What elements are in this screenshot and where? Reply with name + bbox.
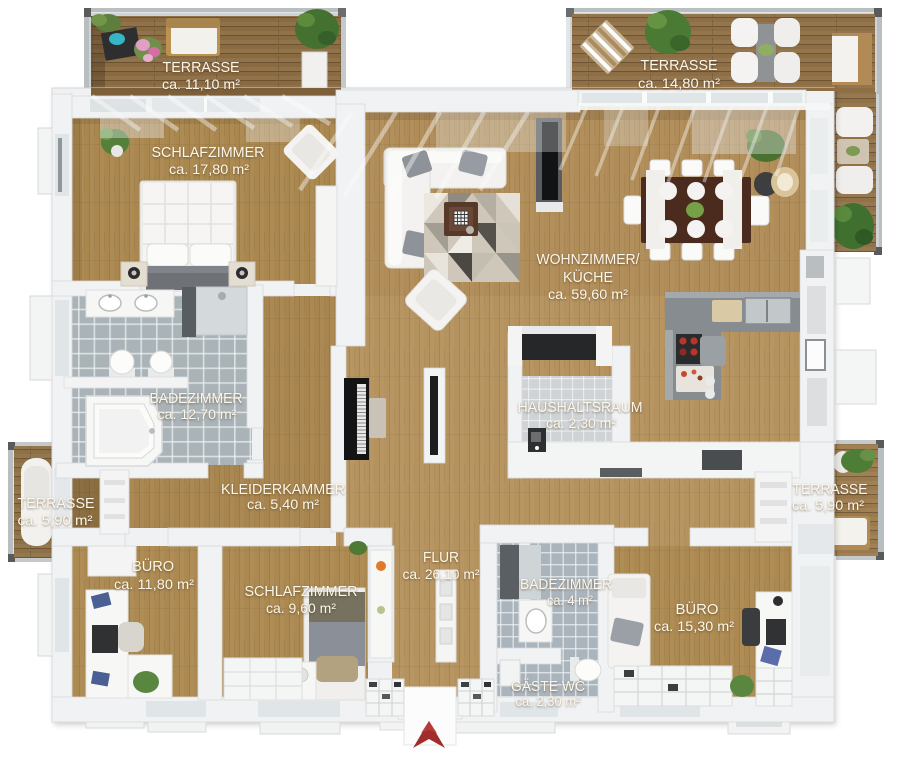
svg-text:ca. 26,10 m²: ca. 26,10 m² (403, 566, 480, 582)
svg-text:TERRASSE: TERRASSE (18, 495, 95, 512)
svg-text:TERRASSE: TERRASSE (641, 57, 718, 74)
svg-text:ca. 5,90 m²: ca. 5,90 m² (792, 497, 864, 513)
svg-text:FLUR: FLUR (423, 549, 459, 566)
svg-text:BÜRO: BÜRO (676, 600, 719, 618)
svg-text:TERRASSE: TERRASSE (163, 59, 240, 76)
svg-text:ca. 11,10 m²: ca. 11,10 m² (162, 76, 240, 92)
svg-text:ca. 4 m²: ca. 4 m² (547, 592, 593, 608)
svg-text:ca. 2,30 m²: ca. 2,30 m² (516, 693, 581, 709)
svg-text:ca. 2,30 m²: ca. 2,30 m² (546, 415, 616, 431)
svg-text:ca. 12,70 m²: ca. 12,70 m² (158, 406, 237, 422)
svg-text:TERRASSE: TERRASSE (793, 481, 868, 498)
svg-text:BADEZIMMER: BADEZIMMER (520, 576, 612, 593)
svg-text:BÜRO: BÜRO (132, 557, 174, 575)
svg-text:HAUSHALTSRAUM: HAUSHALTSRAUM (518, 399, 643, 416)
svg-text:SCHLAFZIMMER: SCHLAFZIMMER (245, 583, 358, 600)
svg-text:ca. 59,60 m²: ca. 59,60 m² (548, 286, 628, 302)
svg-text:ca. 5,90 m²: ca. 5,90 m² (18, 512, 93, 528)
svg-text:BADEZIMMER: BADEZIMMER (150, 390, 243, 407)
svg-text:ca. 11,80 m²: ca. 11,80 m² (114, 576, 194, 592)
svg-text:SCHLAFZIMMER: SCHLAFZIMMER (152, 144, 265, 161)
svg-text:ca. 15,30 m²: ca. 15,30 m² (654, 618, 734, 634)
svg-text:ca. 5,40 m²: ca. 5,40 m² (247, 496, 319, 512)
svg-text:KÜCHE: KÜCHE (563, 268, 613, 286)
svg-text:ca. 17,80 m²: ca. 17,80 m² (169, 161, 249, 177)
svg-text:ca. 14,80 m²: ca. 14,80 m² (638, 75, 720, 91)
svg-text:WOHNZIMMER/: WOHNZIMMER/ (537, 251, 641, 268)
svg-text:ca. 9,60 m²: ca. 9,60 m² (266, 600, 336, 616)
